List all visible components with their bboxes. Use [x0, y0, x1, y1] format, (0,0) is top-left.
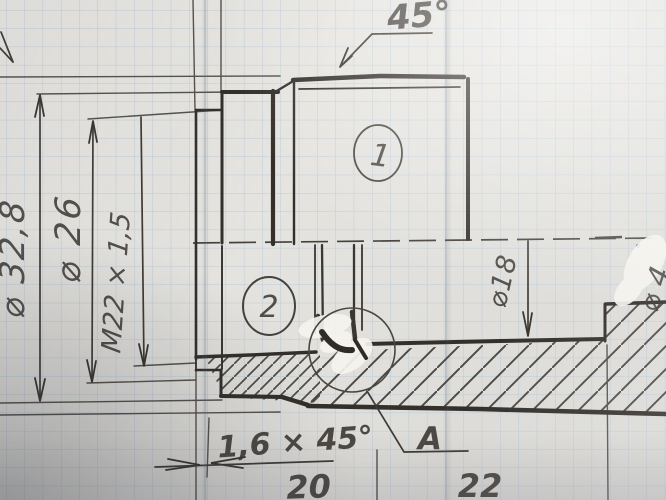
top-chamfer-callout: 45° — [384, 0, 453, 39]
technical-drawing-photo: 45° ⌀ 32,8 ⌀ 26 M22 × 1,5 ⌀18 1,6 × 45° … — [0, 0, 666, 500]
dia-32-8-label: ⌀ 32,8 — [0, 196, 33, 321]
drawing-canvas: 45° ⌀ 32,8 ⌀ 26 M22 × 1,5 ⌀18 1,6 × 45° … — [0, 0, 666, 500]
length-22-label: 22 — [458, 467, 503, 500]
dia-26-label: ⌀ 26 — [48, 191, 89, 285]
length-20-label: 20 — [286, 467, 332, 500]
balloon-2-number: 2 — [259, 290, 278, 325]
detail-a-label: A — [415, 421, 442, 457]
